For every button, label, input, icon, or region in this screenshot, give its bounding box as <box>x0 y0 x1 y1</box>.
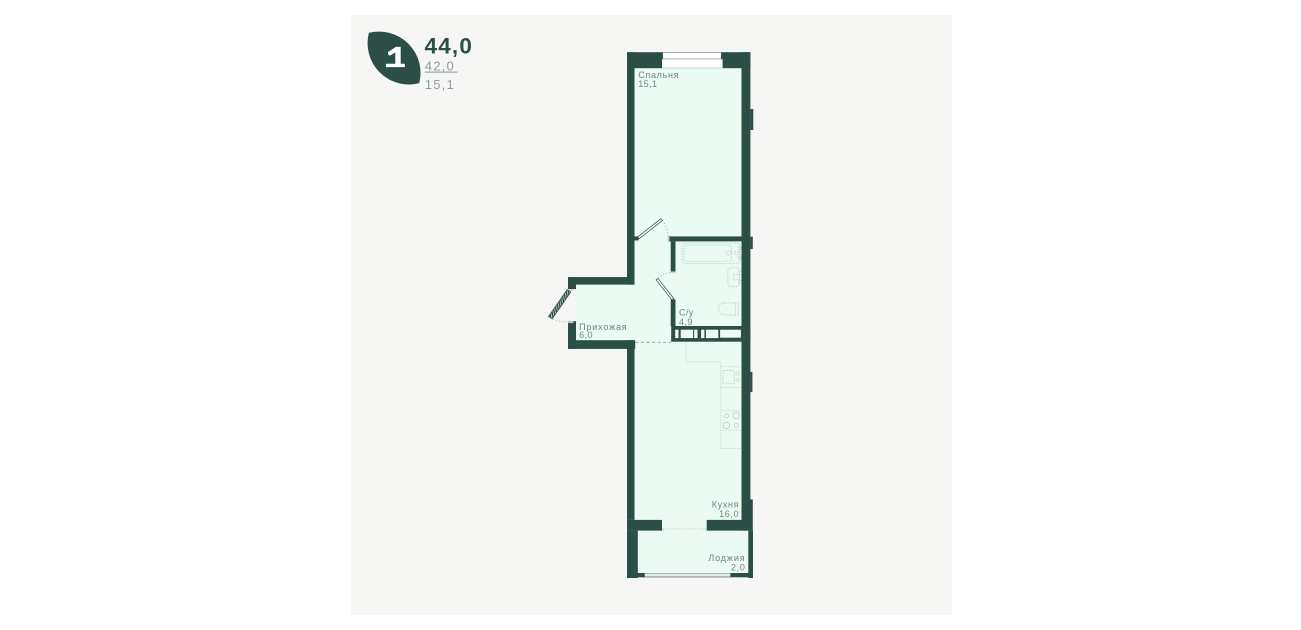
svg-text:15,1: 15,1 <box>638 79 657 89</box>
svg-text:6,0: 6,0 <box>579 330 593 340</box>
svg-text:Лоджия: Лоджия <box>708 553 745 563</box>
svg-text:42,0: 42,0 <box>425 58 455 73</box>
svg-text:С/у: С/у <box>679 308 694 318</box>
svg-text:2,0: 2,0 <box>731 563 745 573</box>
svg-text:4,9: 4,9 <box>679 317 693 327</box>
svg-text:16,0: 16,0 <box>719 509 739 519</box>
svg-text:15,1: 15,1 <box>425 77 455 92</box>
svg-text:44,0: 44,0 <box>425 34 474 59</box>
